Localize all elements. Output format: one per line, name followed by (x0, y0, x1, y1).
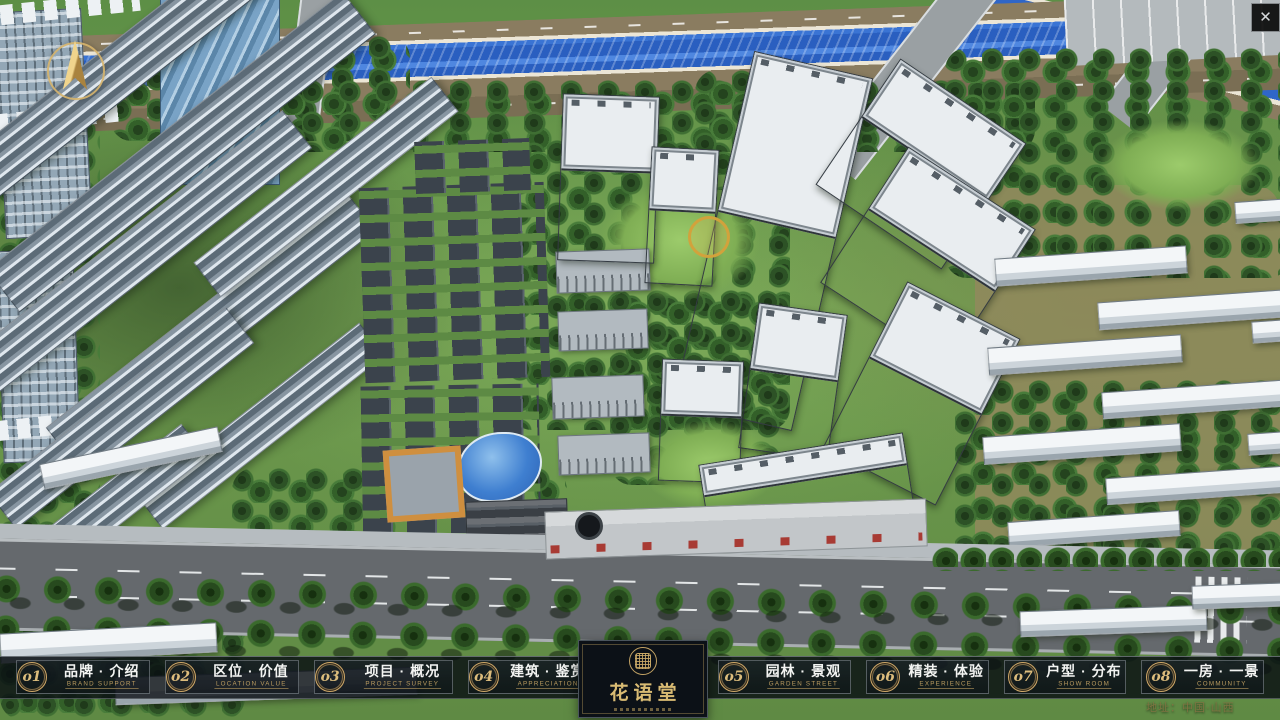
nav-label-en: LOCATION VALUE (214, 681, 288, 690)
project-address: 地址：中国·山西 (1146, 699, 1235, 715)
nav-number: o5 (724, 669, 743, 685)
project-logo-panel[interactable]: 花语堂 (578, 640, 708, 718)
nav-item-architecture[interactable]: o4 建筑 · 鉴赏 APPRECIATION (468, 660, 590, 694)
nav-labels: 项目 · 概况 PROJECT SURVEY (353, 663, 452, 690)
scene-building (1234, 198, 1280, 224)
scene-tower (557, 93, 660, 263)
scene-building (557, 308, 648, 351)
scene-building (383, 445, 466, 522)
logo-subtitle-line (614, 708, 672, 711)
tower-facade (659, 416, 661, 482)
nav-number-badge: o7 (1008, 662, 1038, 692)
nav-label-en: GARDEN STREET (767, 681, 839, 690)
brand-seal-pattern (635, 653, 651, 669)
nav-label-zh: 精装 · 体验 (908, 663, 983, 679)
nav-number: o3 (321, 669, 340, 685)
nav-number: o2 (171, 669, 190, 685)
sales-presentation-window: ✕ o1 品牌 · 介绍 BRAND SUPPORT o2 区位 · 价值 LO… (0, 0, 1280, 720)
nav-item-project-overview[interactable]: o3 项目 · 概况 PROJECT SURVEY (314, 660, 453, 694)
nav-number: o1 (22, 669, 41, 685)
tower-roof (561, 94, 659, 174)
tower-roof (661, 360, 743, 419)
nav-label-zh: 户型 · 分布 (1046, 663, 1121, 679)
close-button[interactable]: ✕ (1251, 3, 1280, 32)
scene-building (1247, 430, 1280, 456)
nav-group-right: o5 园林 · 景观 GARDEN STREET o6 精装 · 体验 EXPE… (718, 660, 1264, 694)
nav-label-en: PROJECT SURVEY (364, 681, 441, 690)
nav-labels: 一房 · 一景 COMMUNITY (1184, 663, 1259, 690)
nav-number-badge: o8 (1146, 662, 1176, 692)
nav-item-interior-experience[interactable]: o6 精装 · 体验 EXPERIENCE (866, 660, 989, 694)
nav-item-floorplan-distribution[interactable]: o7 户型 · 分布 SHOW ROOM (1004, 660, 1127, 694)
nav-label-zh: 建筑 · 鉴赏 (510, 663, 585, 679)
nav-number-badge: o3 (315, 662, 345, 692)
nav-item-location-value[interactable]: o2 区位 · 价值 LOCATION VALUE (165, 660, 300, 694)
nav-labels: 品牌 · 介绍 BRAND SUPPORT (55, 663, 149, 690)
nav-group-left: o1 品牌 · 介绍 BRAND SUPPORT o2 区位 · 价值 LOCA… (16, 660, 562, 694)
scene-building (557, 432, 650, 475)
scene-gate-feature (575, 512, 603, 540)
nav-item-brand-intro[interactable]: o1 品牌 · 介绍 BRAND SUPPORT (16, 660, 150, 694)
nav-number: o7 (1014, 669, 1033, 685)
nav-label-en: APPRECIATION (516, 681, 580, 690)
nav-label-en: BRAND SUPPORT (65, 681, 138, 690)
scene-building (551, 374, 644, 419)
scene-street-trees (930, 545, 1280, 571)
scene-lawn (1100, 120, 1260, 210)
compass-icon (44, 26, 106, 112)
tower-roof (750, 304, 847, 383)
masterplan-render (0, 0, 1280, 720)
nav-number-badge: o2 (166, 662, 196, 692)
brand-seal-icon (629, 647, 657, 675)
nav-number-badge: o5 (719, 662, 749, 692)
nav-label-en: SHOW ROOM (1056, 681, 1111, 690)
scene-courtyard-cluster (414, 138, 531, 194)
nav-labels: 园林 · 景观 GARDEN STREET (757, 663, 850, 690)
nav-label-zh: 项目 · 概况 (365, 663, 440, 679)
nav-label-zh: 区位 · 价值 (213, 663, 288, 679)
nav-number: o4 (474, 669, 493, 685)
nav-label-zh: 园林 · 景观 (766, 663, 841, 679)
scene-courtyard-cluster (359, 182, 551, 383)
nav-labels: 精装 · 体验 EXPERIENCE (908, 663, 983, 690)
nav-label-zh: 一房 · 一景 (1184, 663, 1259, 679)
project-logo-title: 花语堂 (604, 678, 681, 705)
nav-number: o6 (876, 669, 895, 685)
nav-number-badge: o4 (469, 662, 499, 692)
tower-roof (649, 147, 718, 213)
nav-label-en: EXPERIENCE (918, 681, 974, 690)
scene-landscape-feature (688, 216, 730, 258)
scene-building (1251, 318, 1280, 343)
nav-number-badge: o6 (870, 662, 900, 692)
nav-number: o8 (1151, 669, 1170, 685)
nav-label-en: COMMUNITY (1195, 681, 1248, 690)
close-icon: ✕ (1259, 10, 1272, 25)
nav-item-room-view[interactable]: o8 一房 · 一景 COMMUNITY (1141, 660, 1264, 694)
nav-number-badge: o1 (17, 662, 47, 692)
nav-label-zh: 品牌 · 介绍 (64, 663, 139, 679)
nav-labels: 户型 · 分布 SHOW ROOM (1046, 663, 1121, 690)
nav-item-landscape[interactable]: o5 园林 · 景观 GARDEN STREET (718, 660, 851, 694)
nav-labels: 区位 · 价值 LOCATION VALUE (204, 663, 299, 690)
scene-building (1192, 582, 1280, 609)
nav-labels: 建筑 · 鉴赏 APPRECIATION (507, 663, 589, 690)
